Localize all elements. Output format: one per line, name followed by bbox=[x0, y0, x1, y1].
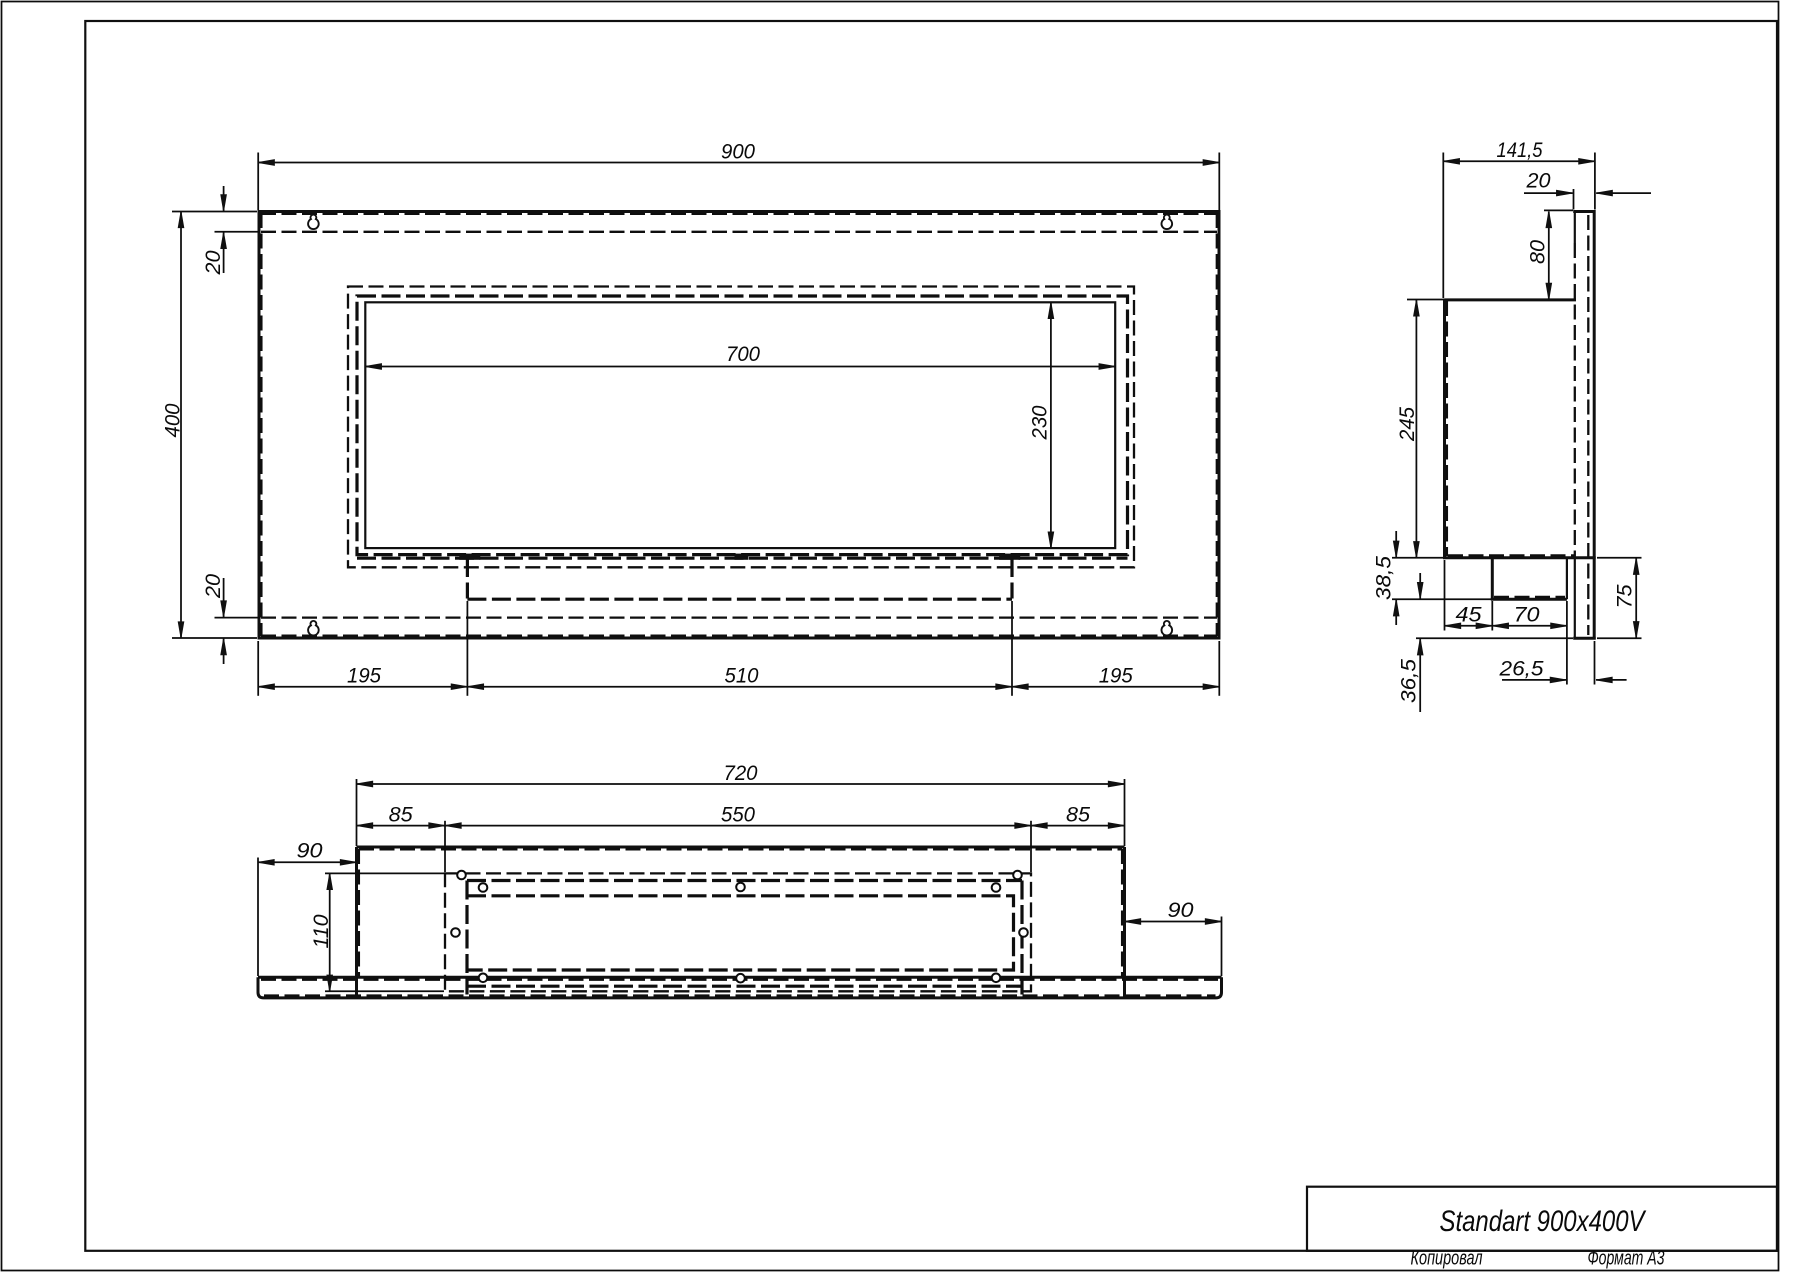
svg-text:Standart 900x400V: Standart 900x400V bbox=[1440, 1205, 1647, 1238]
svg-text:20: 20 bbox=[1525, 169, 1550, 192]
svg-text:Копировал: Копировал bbox=[1411, 1248, 1483, 1270]
svg-text:20: 20 bbox=[202, 250, 225, 275]
svg-text:900: 900 bbox=[721, 140, 755, 163]
svg-text:36,5: 36,5 bbox=[1398, 659, 1421, 703]
svg-text:90: 90 bbox=[297, 839, 323, 862]
svg-text:245: 245 bbox=[1396, 407, 1419, 442]
svg-text:400: 400 bbox=[162, 403, 185, 437]
svg-text:85: 85 bbox=[389, 803, 413, 826]
svg-text:550: 550 bbox=[721, 803, 755, 826]
svg-text:700: 700 bbox=[726, 343, 760, 366]
svg-text:20: 20 bbox=[202, 574, 225, 599]
svg-text:90: 90 bbox=[1168, 899, 1194, 922]
svg-text:110: 110 bbox=[310, 914, 333, 948]
svg-text:Формат А3: Формат А3 bbox=[1588, 1248, 1665, 1270]
svg-text:26,5: 26,5 bbox=[1498, 657, 1543, 680]
svg-text:141,5: 141,5 bbox=[1497, 139, 1543, 162]
svg-text:45: 45 bbox=[1456, 603, 1482, 626]
svg-text:195: 195 bbox=[1099, 664, 1133, 687]
svg-text:38,5: 38,5 bbox=[1373, 556, 1396, 600]
svg-text:230: 230 bbox=[1029, 405, 1052, 440]
svg-text:720: 720 bbox=[724, 762, 758, 785]
svg-text:510: 510 bbox=[725, 664, 759, 687]
svg-text:195: 195 bbox=[347, 664, 381, 687]
svg-text:80: 80 bbox=[1527, 240, 1550, 264]
svg-text:70: 70 bbox=[1514, 603, 1540, 626]
svg-text:75: 75 bbox=[1614, 584, 1637, 608]
svg-text:85: 85 bbox=[1066, 803, 1090, 826]
